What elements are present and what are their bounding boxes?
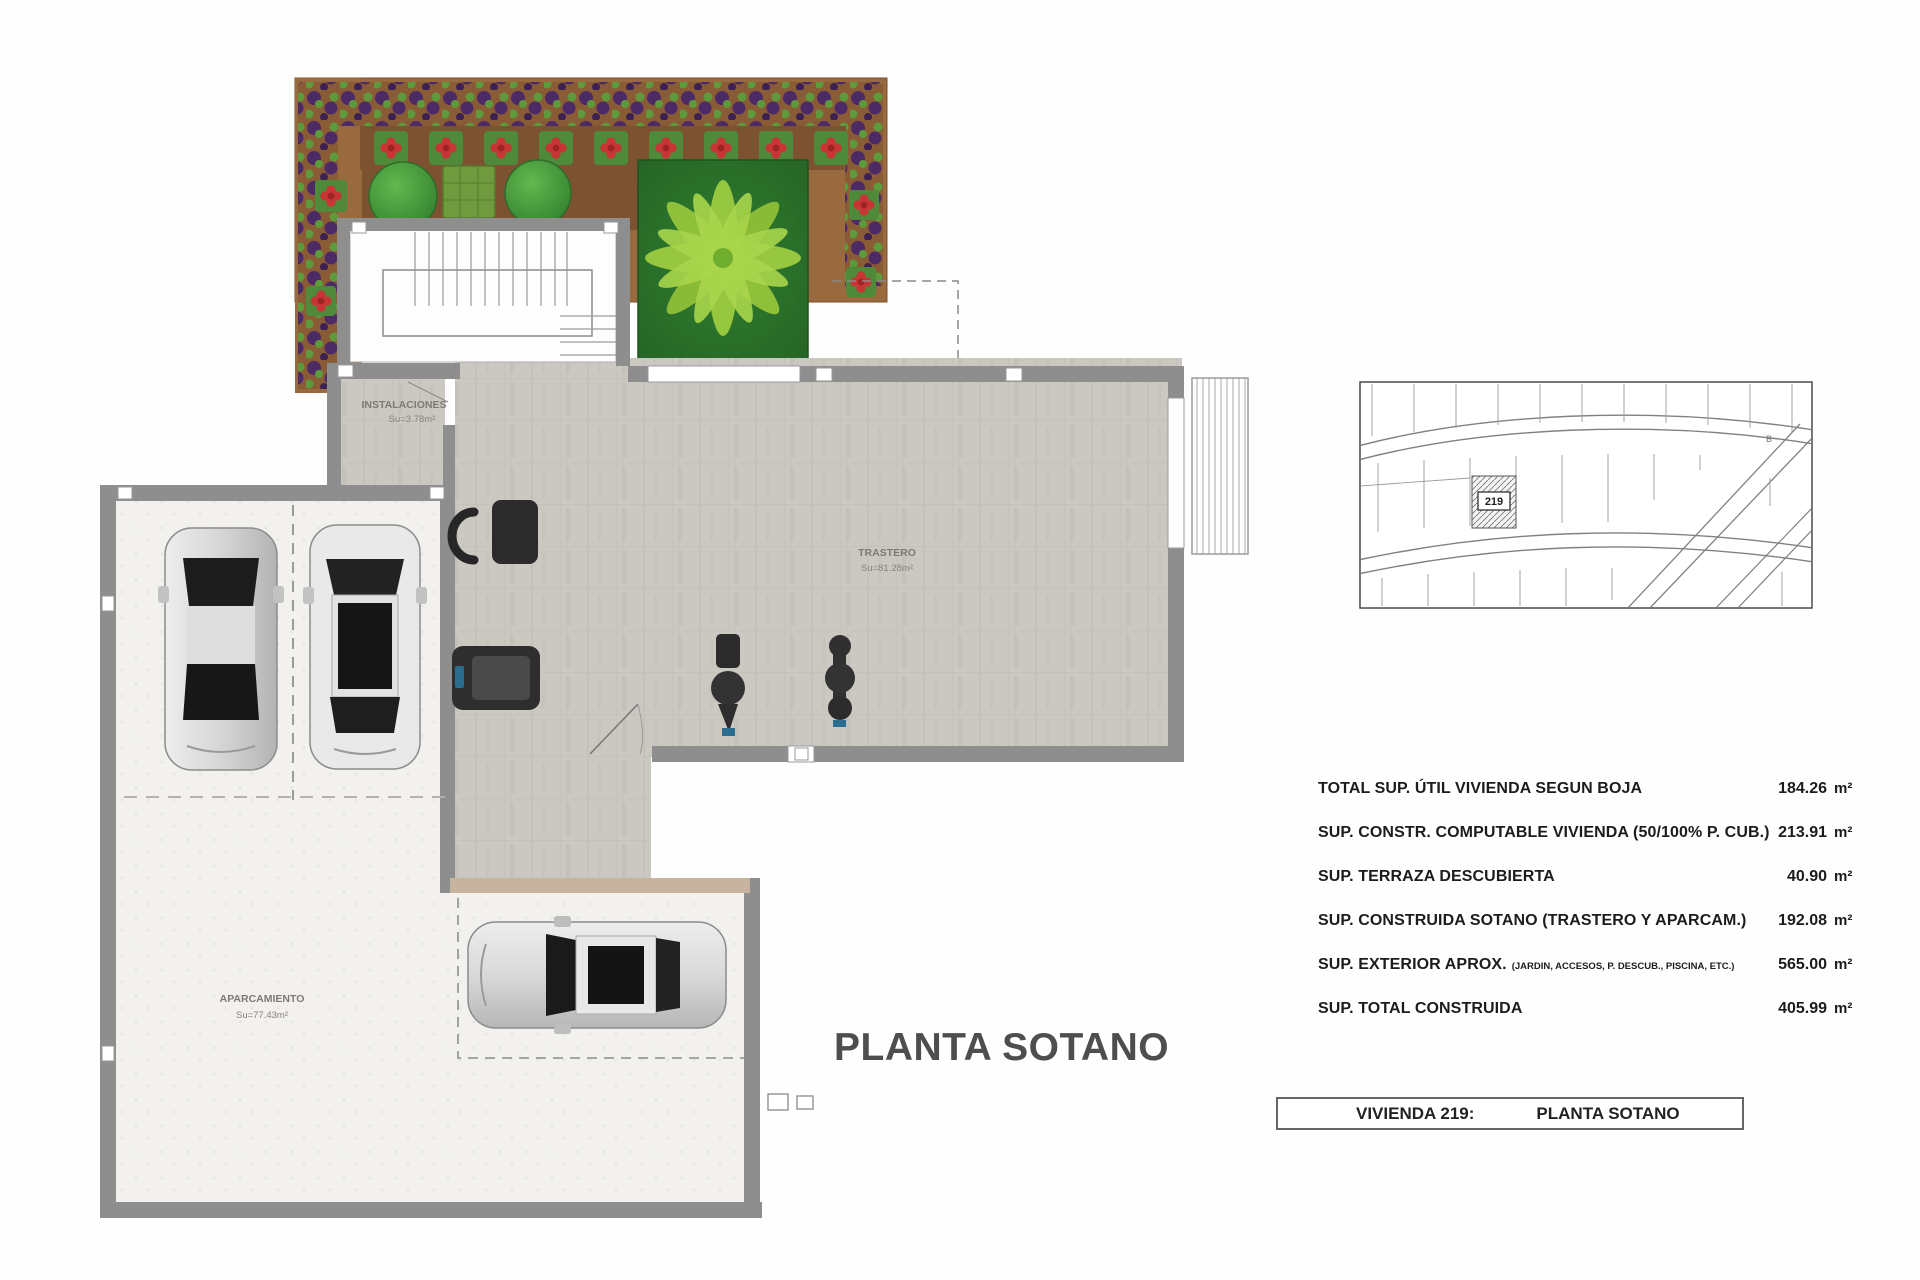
area-unit: m²	[1834, 824, 1858, 841]
ramp-floor	[455, 755, 651, 880]
area-label: SUP. CONSTRUIDA SOTANO (TRASTERO Y APARC…	[1318, 912, 1746, 930]
area-value: 40.90	[1775, 868, 1827, 886]
wall	[616, 218, 630, 366]
site-map: 219 B	[1358, 382, 1814, 610]
floor-name-label: PLANTA SOTANO	[1536, 1104, 1679, 1124]
basement-floors	[114, 358, 1182, 1204]
table-row: SUP. TERRAZA DESCUBIERTA 40.90 m²	[1318, 868, 1858, 912]
house-number-label: VIVIENDA 219:	[1356, 1104, 1474, 1124]
wall	[338, 218, 628, 231]
footer-title-box: VIVIENDA 219: PLANTA SOTANO	[1276, 1097, 1744, 1130]
retaining-wall	[450, 878, 750, 893]
plot-219: 219	[1472, 476, 1516, 528]
table-row: SUP. TOTAL CONSTRUIDA 405.99 m²	[1318, 1000, 1858, 1044]
table-row: SUP. EXTERIOR APROX. (JARDIN, ACCESOS, P…	[1318, 956, 1858, 1000]
area-note: (JARDIN, ACCESOS, P. DESCUB., PISCINA, E…	[1512, 961, 1735, 972]
trastero-floor	[455, 358, 1182, 757]
terrace-opening	[648, 366, 800, 382]
car-icon	[468, 916, 726, 1034]
trastero-label: TRASTERO	[858, 547, 916, 559]
instalaciones-floor	[341, 379, 445, 498]
area-unit: m²	[1834, 956, 1858, 973]
exterior-stairs	[1190, 376, 1250, 556]
instalaciones-area: Su=3.78m²	[389, 414, 436, 425]
area-value: 565.00	[1775, 956, 1827, 974]
plant-border-left	[298, 84, 338, 389]
area-unit: m²	[1834, 780, 1858, 797]
area-value: 213.91	[1775, 824, 1827, 842]
area-label: SUP. TERRAZA DESCUBIERTA	[1318, 868, 1555, 886]
aparcamiento-label: APARCAMIENTO	[220, 993, 305, 1005]
entry-stairs	[337, 218, 630, 370]
area-label: SUP. CONSTR. COMPUTABLE VIVIENDA (50/100…	[1318, 824, 1770, 842]
aparcamiento-area: Su=77.43m²	[236, 1010, 288, 1021]
bush-icon	[505, 160, 571, 226]
area-unit: m²	[1834, 868, 1858, 885]
stair-opening	[1168, 398, 1184, 548]
area-label: SUP. TOTAL CONSTRUIDA	[1318, 1000, 1523, 1018]
plant-border-top	[300, 82, 880, 126]
area-label: SUP. EXTERIOR APROX.	[1318, 956, 1507, 974]
page-title: PLANTA SOTANO	[834, 1026, 1144, 1070]
area-value: 184.26	[1775, 780, 1827, 798]
detail-symbol	[768, 1094, 813, 1110]
hedge-icon	[443, 166, 495, 218]
floor-plan-drawing: INSTALACIONES Su=3.78m² TRASTERO Su=81.2…	[0, 0, 1920, 1280]
area-label: TOTAL SUP. ÚTIL VIVIENDA SEGUN BOJA	[1318, 780, 1642, 798]
car-icon	[303, 525, 427, 769]
area-unit: m²	[1834, 1000, 1858, 1017]
instalaciones-label: INSTALACIONES	[362, 399, 447, 411]
palm-tree-icon	[638, 160, 808, 360]
plant-border-right	[845, 84, 883, 286]
areas-table: TOTAL SUP. ÚTIL VIVIENDA SEGUN BOJA 184.…	[1318, 780, 1858, 1044]
plot-number-label: 219	[1485, 496, 1503, 508]
map-corner-label: B	[1766, 434, 1772, 444]
table-row: SUP. CONSTRUIDA SOTANO (TRASTERO Y APARC…	[1318, 912, 1858, 956]
gym-equipment-icon	[825, 635, 855, 727]
area-value: 192.08	[1775, 912, 1827, 930]
table-row: TOTAL SUP. ÚTIL VIVIENDA SEGUN BOJA 184.…	[1318, 780, 1858, 824]
gym-equipment-icon	[452, 646, 540, 710]
car-icon	[158, 528, 284, 770]
area-value: 405.99	[1775, 1000, 1827, 1018]
table-row: SUP. CONSTR. COMPUTABLE VIVIENDA (50/100…	[1318, 824, 1858, 868]
wall	[337, 218, 350, 370]
trastero-area: Su=81.28m²	[861, 563, 913, 574]
drawing-sheet: INSTALACIONES Su=3.78m² TRASTERO Su=81.2…	[0, 0, 1920, 1280]
area-unit: m²	[1834, 912, 1858, 929]
